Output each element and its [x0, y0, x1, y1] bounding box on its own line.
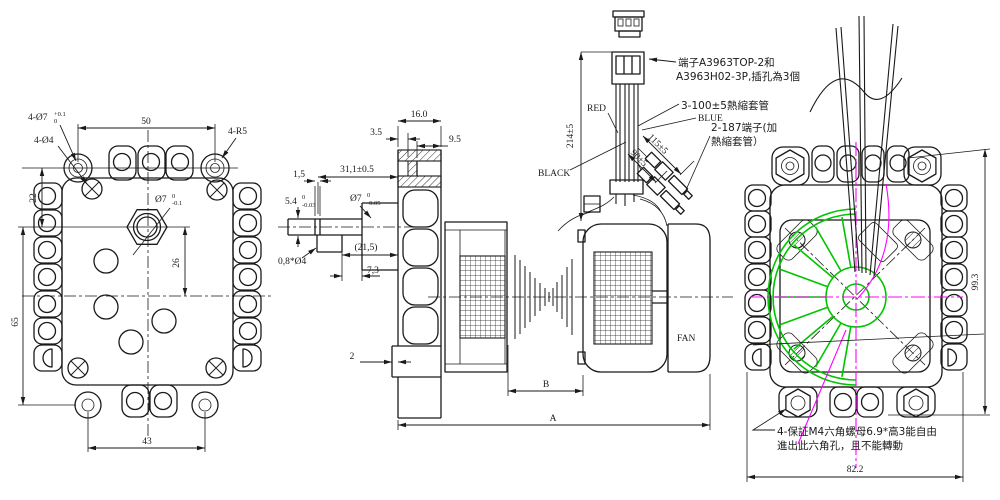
wire-guide [857, 221, 899, 263]
label-shaft-dia-tol-upper: 0 [367, 192, 370, 199]
dim-flat-height: 5.4 [285, 197, 297, 207]
label-black: BLACK [538, 169, 570, 179]
connector-plug [612, 11, 644, 84]
dim-boss-step: 7,3 [367, 266, 379, 276]
label-corner-holes-tol-upper: +0.1 [54, 111, 66, 118]
dim-a: A [550, 414, 557, 424]
dim-rear-height: 99.3 [971, 273, 981, 290]
label-shaft-dia: Ø7 [350, 194, 362, 204]
wire-collar [610, 180, 643, 194]
rear-view: 99.3 82.2 4-保証M4六角螺母6.9*高3能自由 進出此六角孔，且不能… [745, 16, 990, 482]
engineering-drawing-page: 50 43 22 65 26 4-Ø7 +0.1 0 4-Ø4 4-R5 Ø7 … [0, 0, 1000, 500]
terminal-box [558, 195, 667, 231]
front-shaft-boss [127, 208, 170, 255]
note-terminal-line1: 2-187端子(加 [711, 121, 777, 134]
label-shaft-hole: Ø7 [155, 195, 167, 205]
label-fan: FAN [677, 334, 695, 344]
dim-boss-length: (21,5) [355, 242, 378, 253]
front-top-fins [109, 146, 193, 180]
dim-tube-bore: 9.5 [449, 135, 461, 145]
label-shaft-hole-tol-upper: 0 [172, 193, 175, 200]
front-corner-ears [64, 154, 229, 418]
rear-centerlines [750, 142, 963, 468]
front-side-fins [34, 183, 261, 371]
dim-tube-step: 3.5 [370, 128, 382, 138]
note-connector-line2: A3963H02-3P,插孔為3個 [676, 70, 800, 83]
front-bottom-fins [122, 385, 177, 417]
label-shaft-hole-tol-lower: -0.1 [172, 200, 182, 207]
dim-rear-width: 82.2 [847, 465, 864, 475]
dim-flat-height-tol-lower: -0.03 [302, 202, 316, 209]
dim-shaft-offset: 26 [172, 258, 182, 268]
gearbox-section [392, 150, 441, 418]
label-screw-holes: 4-Ø4 [34, 136, 54, 146]
dim-wire-length: 214±5 [566, 124, 576, 148]
motor-gearbox-drawing: 50 43 22 65 26 4-Ø7 +0.1 0 4-Ø4 4-R5 Ø7 … [0, 0, 1000, 500]
dim-flat-height-tol-upper: 0 [302, 194, 305, 201]
note-connector-line1: 端子A3963TOP-2和 [678, 56, 775, 69]
wiring-harness: 90±5 115±5 RED BLACK BLUE 3-100±5熱縮套管 端子… [538, 11, 800, 214]
dim-tube-length: 16.0 [411, 110, 428, 120]
dim-wall: 2 [350, 352, 355, 362]
dim-left-lower: 65 [11, 317, 21, 327]
dim-flat-length: 1,5 [293, 170, 305, 180]
front-holes [94, 249, 176, 354]
label-corner-holes-tol-lower: 0 [54, 118, 57, 125]
front-view: 50 43 22 65 26 4-Ø7 +0.1 0 4-Ø4 4-R5 Ø7 … [11, 111, 272, 452]
dim-terminal-long: 115±5 [645, 133, 669, 157]
side-view: FAN 16.0 3.5 9.5 31,1±0.5 1,5 5.4 0 -0.0… [278, 52, 733, 430]
label-red: RED [587, 104, 606, 114]
label-shaft-dia-tol-lower: -0.05 [367, 200, 381, 207]
note-sleeve: 3-100±5熱縮套管 [681, 99, 769, 112]
dim-b: B [543, 380, 549, 390]
rear-coil [578, 224, 668, 372]
dim-left-upper: 22 [29, 193, 39, 203]
rear-note-line2: 進出此六角孔，且不能轉動 [777, 439, 903, 452]
note-terminal-line2: 熱縮套管） [711, 135, 764, 148]
label-corner-radius: 4-R5 [228, 127, 247, 137]
dim-top-width: 50 [141, 117, 151, 127]
front-phillips-screws [68, 179, 227, 378]
label-corner-holes: 4-Ø7 [28, 113, 48, 123]
front-dimensions: 50 43 22 65 26 4-Ø7 +0.1 0 4-Ø4 4-R5 Ø7 … [11, 111, 247, 452]
dim-shaft-length: 31,1±0.5 [340, 165, 374, 175]
dim-bottom-width: 43 [142, 437, 152, 447]
wire-labels: RED BLACK BLUE 3-100±5熱縮套管 端子A3963TOP-2和… [538, 56, 800, 190]
label-chamfer: 0,8*Ø4 [278, 257, 306, 267]
side-dimensions: 16.0 3.5 9.5 31,1±0.5 1,5 5.4 0 -0.03 Ø7… [278, 52, 710, 430]
rear-note-line1: 4-保証M4六角螺母6.9*高3能自由 [777, 425, 937, 438]
fan-housing: FAN [668, 224, 710, 372]
